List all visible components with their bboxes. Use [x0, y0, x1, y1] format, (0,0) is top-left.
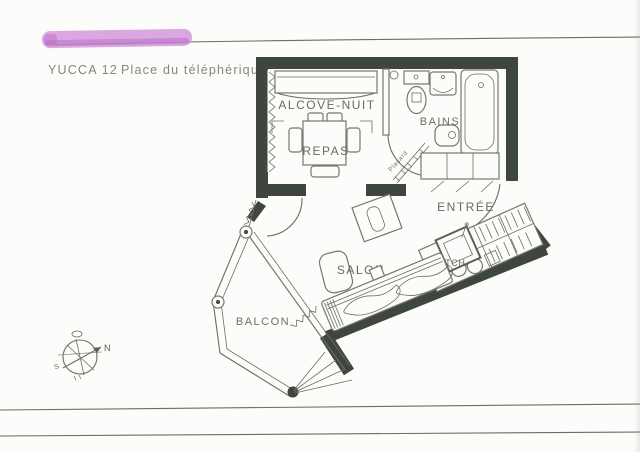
- wall-right: [506, 57, 518, 181]
- wall-left: [256, 57, 268, 198]
- left-door-arc: [267, 198, 302, 236]
- toilet: [404, 71, 429, 114]
- bath-partition-wall: [383, 69, 389, 135]
- compass-north-label: N: [104, 343, 111, 353]
- floor-plan-drawing: YUCCA 12 Place du téléphérique: [0, 0, 640, 452]
- facade-window-zigzag: [290, 306, 319, 329]
- pink-highlighter-mark: [42, 29, 192, 49]
- bidet: [435, 125, 459, 146]
- dining-table: [303, 121, 346, 165]
- chair-left: [289, 128, 302, 152]
- scan-rule-lines: [0, 37, 640, 436]
- alcove-label: ALCOVE-NUIT: [278, 98, 375, 112]
- tv-unit: [352, 194, 402, 242]
- wall-south-corner: [325, 335, 349, 372]
- wall-stub-left: [256, 184, 306, 196]
- compass-south-label: S: [53, 363, 60, 371]
- bains-label: BAINS: [420, 116, 461, 128]
- balcon-label: BALCON: [236, 316, 290, 328]
- bottom-rule-line-1: [0, 404, 640, 410]
- placard-label: Placard: [387, 150, 409, 174]
- balcony-post-tip: [288, 387, 299, 398]
- entree-label: ENTRÉE: [437, 199, 495, 214]
- compass-o-ring: [72, 331, 82, 337]
- chair-bottom: [311, 166, 339, 177]
- repas-label: REPAS: [302, 144, 349, 158]
- plan-title-reference: YUCCA 12: [48, 63, 118, 77]
- compass-rose: N S: [53, 331, 110, 380]
- scanned-floor-plan-page: YUCCA 12 Place du téléphérique: [0, 0, 640, 452]
- door-hinge-mark: [390, 71, 398, 79]
- highlighter-blob: [44, 34, 57, 45]
- washbasin: [430, 72, 456, 95]
- entry-closet: [421, 153, 499, 192]
- plan-title-address: Place du téléphérique: [121, 63, 267, 77]
- bathtub: [461, 70, 498, 154]
- bottom-rule-line-2: [0, 432, 640, 436]
- alcove-bed: [275, 71, 377, 99]
- wall-top: [256, 57, 518, 69]
- wall-stub-middle: [366, 184, 406, 196]
